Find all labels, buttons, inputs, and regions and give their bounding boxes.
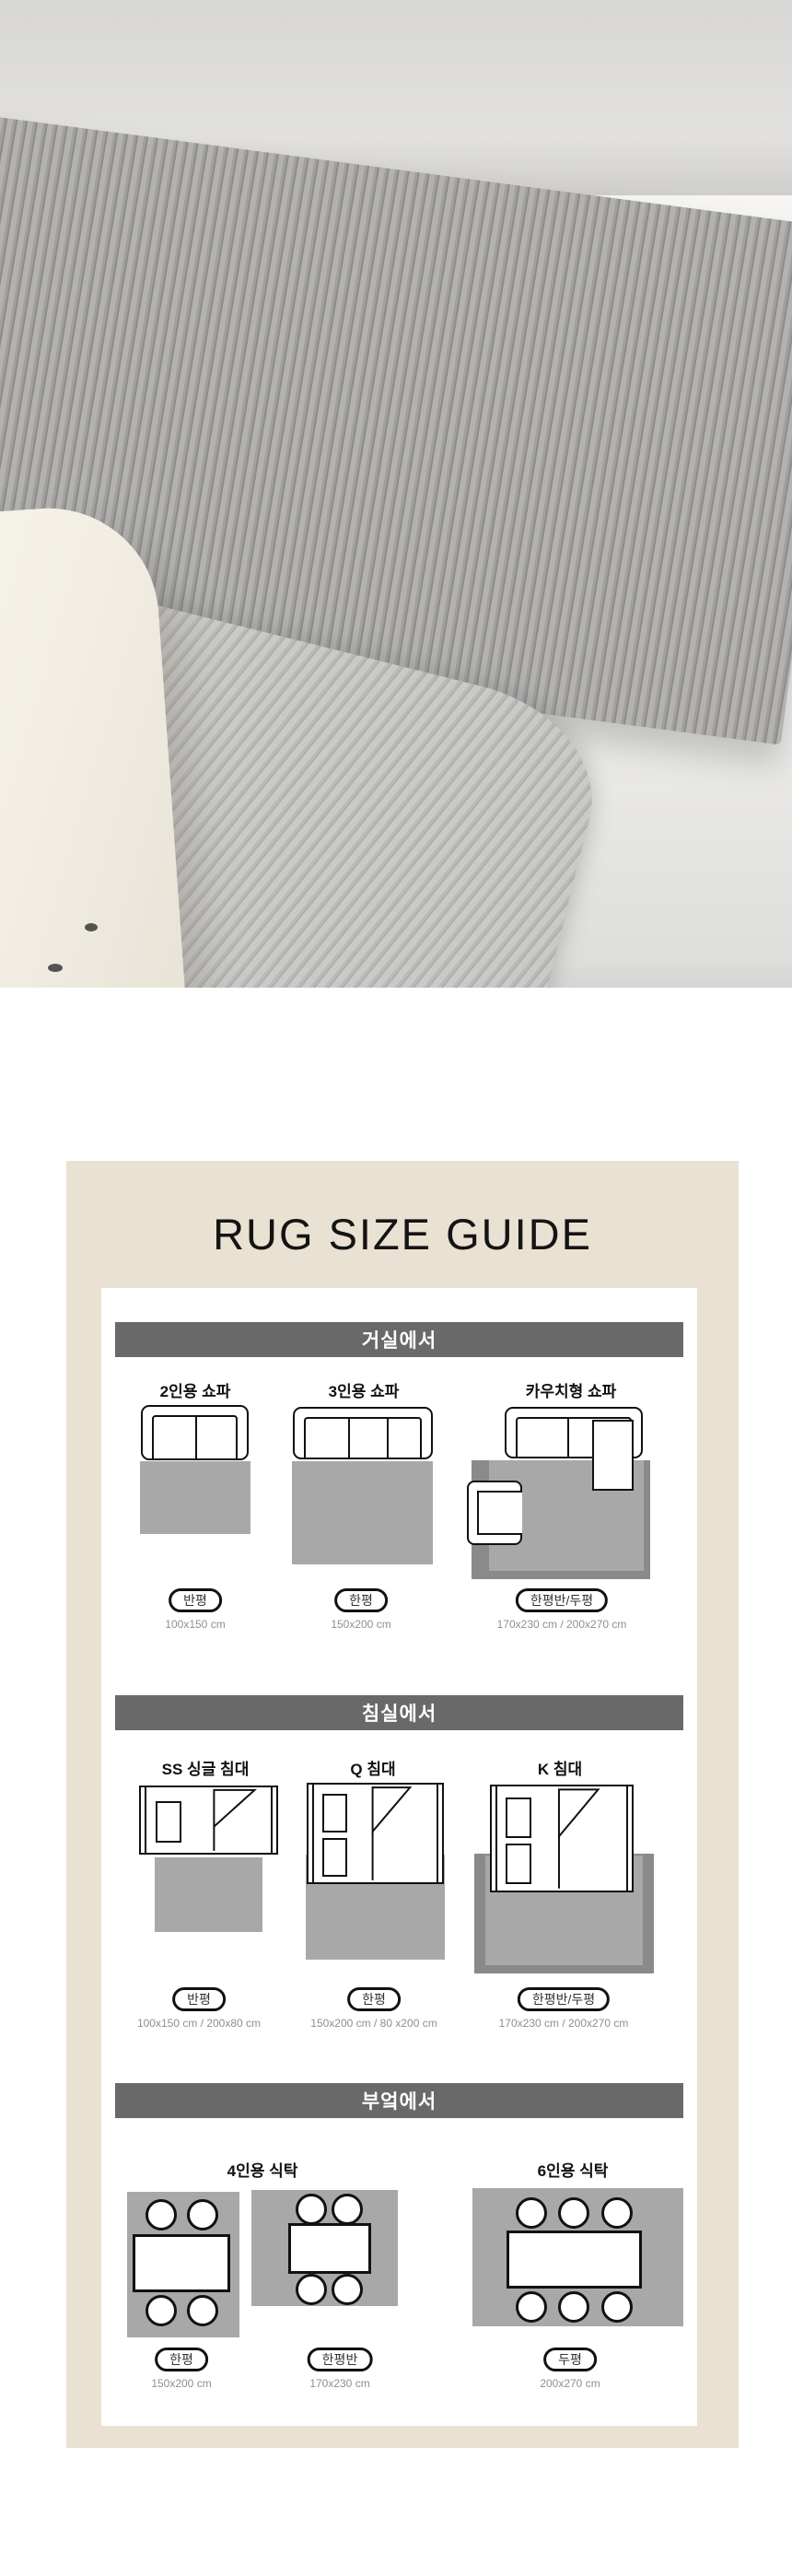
chair-circle xyxy=(516,2197,547,2229)
photo-sofa-foot xyxy=(85,923,98,931)
bed-q-diagram xyxy=(307,1783,444,1884)
sofa-3seat-diagram xyxy=(293,1407,433,1459)
bed-blanket-fold xyxy=(141,1787,276,1853)
dining-table-4-diagram xyxy=(288,2223,371,2274)
rug-photo xyxy=(0,0,792,988)
size-living-3: 170x230 cm / 200x270 cm xyxy=(497,1618,627,1631)
rug-diagram-living-1 xyxy=(140,1461,250,1534)
badge-bed-3: 한평반/두평 xyxy=(518,1987,610,2011)
chair-circle xyxy=(332,2274,363,2305)
sofa-seat-divider xyxy=(567,1417,569,1457)
chair-circle xyxy=(516,2291,547,2323)
bed-blanket-fold xyxy=(309,1785,442,1882)
badge-bed-1: 반평 xyxy=(172,1987,226,2011)
badge-living-3: 한평반/두평 xyxy=(516,1588,608,1612)
column-label-sofa-couch: 카우치형 쇼파 xyxy=(526,1378,617,1401)
bed-k-diagram xyxy=(490,1785,634,1892)
column-label-bed-k: K 침대 xyxy=(538,1756,582,1779)
chair-circle xyxy=(146,2199,177,2231)
badge-kitchen-2: 한평반 xyxy=(308,2348,373,2371)
chair-circle xyxy=(296,2194,327,2225)
sofa-2seat-diagram xyxy=(141,1405,249,1460)
chair-circle xyxy=(558,2291,589,2323)
column-label-sofa-3seat: 3인용 쇼파 xyxy=(329,1378,400,1401)
guide-title: RUG SIZE GUIDE xyxy=(66,1209,739,1260)
rug-diagram-bed-1 xyxy=(155,1857,262,1932)
bed-blanket-fold xyxy=(492,1786,632,1891)
armchair-seat xyxy=(477,1491,522,1535)
size-living-1: 100x150 cm xyxy=(165,1618,225,1631)
section-header-living-room: 거실에서 xyxy=(115,1322,683,1357)
badge-bed-2: 한평 xyxy=(347,1987,401,2011)
sofa-seat-divider xyxy=(387,1417,389,1458)
section-header-bedroom: 침실에서 xyxy=(115,1695,683,1730)
size-kitchen-3: 200x270 cm xyxy=(540,2377,600,2390)
guide-sheet: 거실에서 2인용 쇼파 3인용 쇼파 카우치형 쇼파 xyxy=(101,1288,697,2426)
dining-table-6-diagram xyxy=(507,2231,642,2289)
size-bed-1: 100x150 cm / 200x80 cm xyxy=(137,2017,261,2030)
chair-circle xyxy=(601,2197,633,2229)
column-label-sofa-2seat: 2인용 쇼파 xyxy=(160,1378,231,1401)
chair-circle xyxy=(332,2194,363,2225)
column-label-bed-ss: SS 싱글 침대 xyxy=(162,1756,250,1779)
rug-diagram-living-2 xyxy=(292,1461,433,1564)
badge-kitchen-3: 두평 xyxy=(543,2348,597,2371)
rug-size-guide-panel: RUG SIZE GUIDE 거실에서 2인용 쇼파 3인용 쇼파 카우치형 쇼… xyxy=(66,1161,739,2448)
chair-circle xyxy=(146,2295,177,2326)
column-label-table-6: 6인용 식탁 xyxy=(538,2158,609,2181)
chair-circle xyxy=(558,2197,589,2229)
sofa-seat-divider xyxy=(195,1415,197,1458)
couch-chaise-diagram xyxy=(592,1420,634,1491)
badge-kitchen-1: 한평 xyxy=(155,2348,208,2371)
size-kitchen-2: 170x230 cm xyxy=(309,2377,369,2390)
armchair-diagram xyxy=(467,1481,522,1545)
size-living-2: 150x200 cm xyxy=(331,1618,390,1631)
chair-circle xyxy=(187,2295,218,2326)
size-bed-3: 170x230 cm / 200x270 cm xyxy=(499,2017,629,2030)
size-bed-2: 150x200 cm / 80 x200 cm xyxy=(310,2017,437,2030)
bed-ss-diagram xyxy=(139,1786,278,1855)
badge-living-1: 반평 xyxy=(169,1588,222,1612)
column-label-bed-q: Q 침대 xyxy=(350,1756,395,1779)
sofa-seat xyxy=(304,1417,422,1459)
section-header-kitchen: 부엌에서 xyxy=(115,2083,683,2118)
badge-living-2: 한평 xyxy=(334,1588,388,1612)
chair-circle xyxy=(601,2291,633,2323)
photo-sofa-foot xyxy=(48,964,63,972)
size-kitchen-1: 150x200 cm xyxy=(151,2377,211,2390)
chair-circle xyxy=(296,2274,327,2305)
column-label-table-4: 4인용 식탁 xyxy=(227,2158,298,2181)
dining-table-4-diagram xyxy=(133,2234,230,2292)
sofa-seat-divider xyxy=(348,1417,350,1458)
chair-circle xyxy=(187,2199,218,2231)
product-detail-image: RUG SIZE GUIDE 거실에서 2인용 쇼파 3인용 쇼파 카우치형 쇼… xyxy=(0,0,792,2576)
